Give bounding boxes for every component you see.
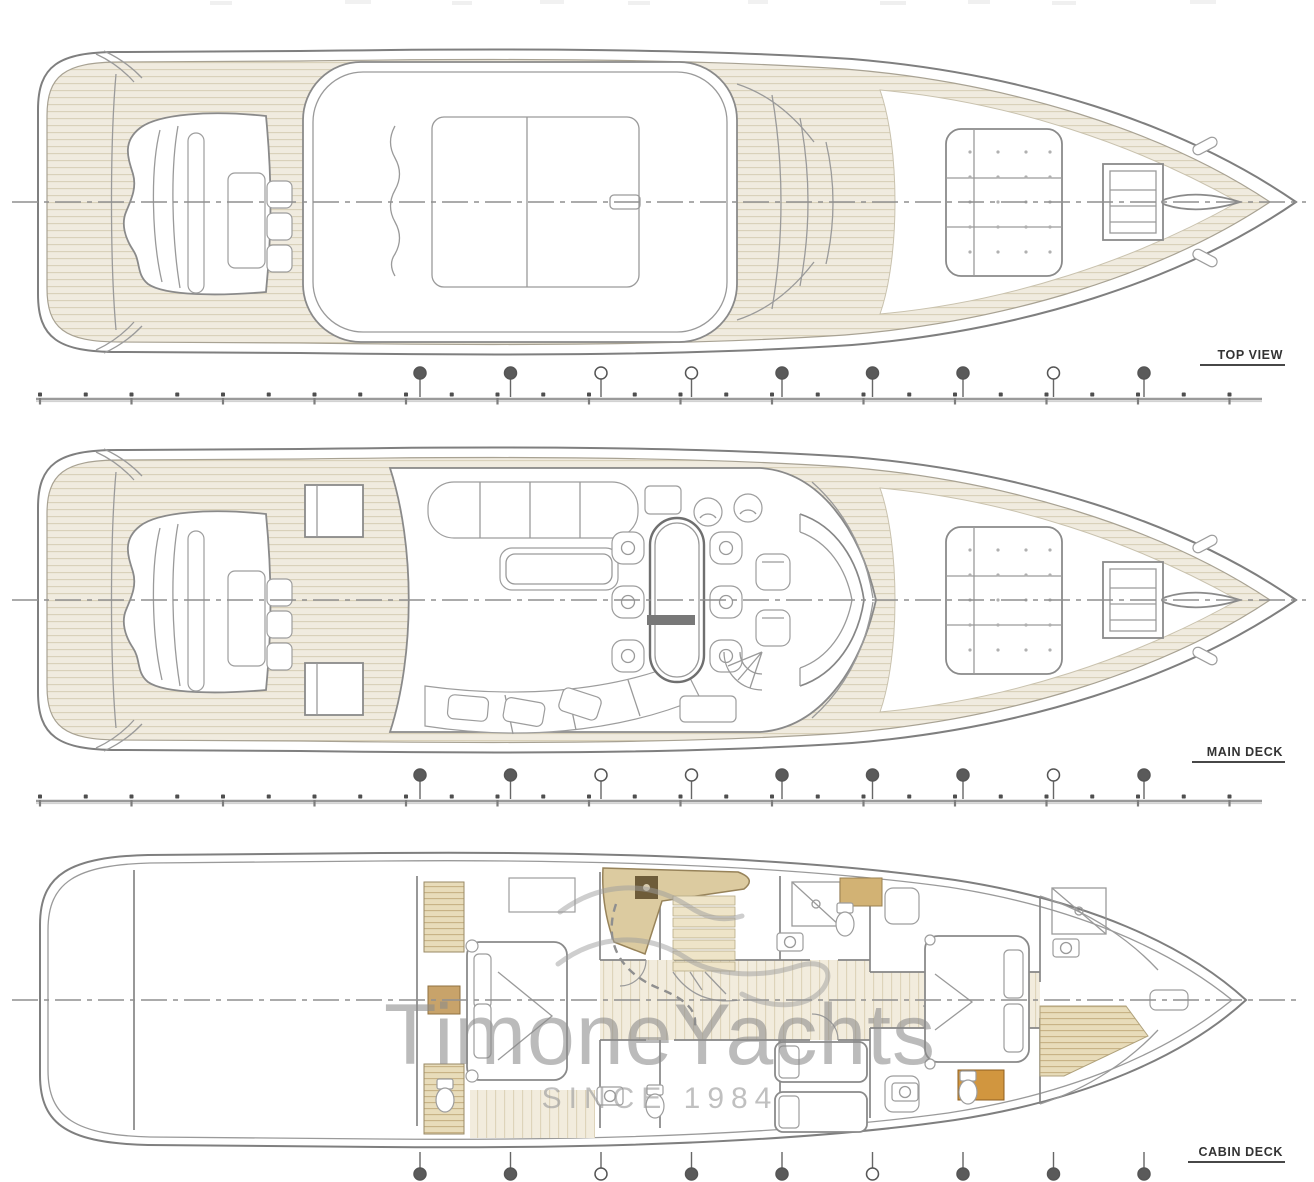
top-view-plan — [12, 50, 1306, 355]
main-deck-plan — [12, 448, 1306, 753]
yacht-deck-plan-sheet: TimoneYachts SINCE 1984 TOP VIEW MAIN DE… — [0, 0, 1314, 1182]
sink — [892, 1083, 918, 1101]
scan-artifacts — [210, 0, 1216, 5]
watermark-brand: TimoneYachts — [384, 987, 936, 1083]
island-bed — [925, 935, 1029, 1069]
toilet — [436, 1079, 454, 1112]
salon — [390, 468, 876, 734]
seat — [885, 888, 919, 924]
ruler-top — [36, 367, 1262, 405]
toilet — [959, 1071, 977, 1104]
coffee-table — [500, 548, 618, 590]
watermark-tagline: SINCE 1984 — [542, 1082, 779, 1115]
sink — [777, 933, 803, 951]
cabinet — [840, 878, 882, 906]
main-deck-label: MAIN DECK — [1207, 745, 1283, 759]
station-balloons — [414, 769, 1150, 799]
wardrobe — [424, 882, 464, 952]
station-balloons — [414, 367, 1150, 397]
sink — [1053, 939, 1079, 957]
sideboard — [647, 615, 695, 625]
cabinet — [680, 696, 736, 722]
armchair — [734, 494, 762, 522]
toilet — [836, 903, 854, 936]
yacht-deck-plans-drawing: TimoneYachts SINCE 1984 TOP VIEW MAIN DE… — [0, 0, 1314, 1182]
armchair — [694, 498, 722, 526]
view-labels: TOP VIEW MAIN DECK CABIN DECK — [1188, 348, 1285, 1162]
cabin-deck-label: CABIN DECK — [1199, 1145, 1283, 1159]
ruler-bottom-balloons — [414, 1152, 1150, 1180]
top-view-label: TOP VIEW — [1218, 348, 1283, 362]
ruler-middle — [36, 769, 1262, 807]
